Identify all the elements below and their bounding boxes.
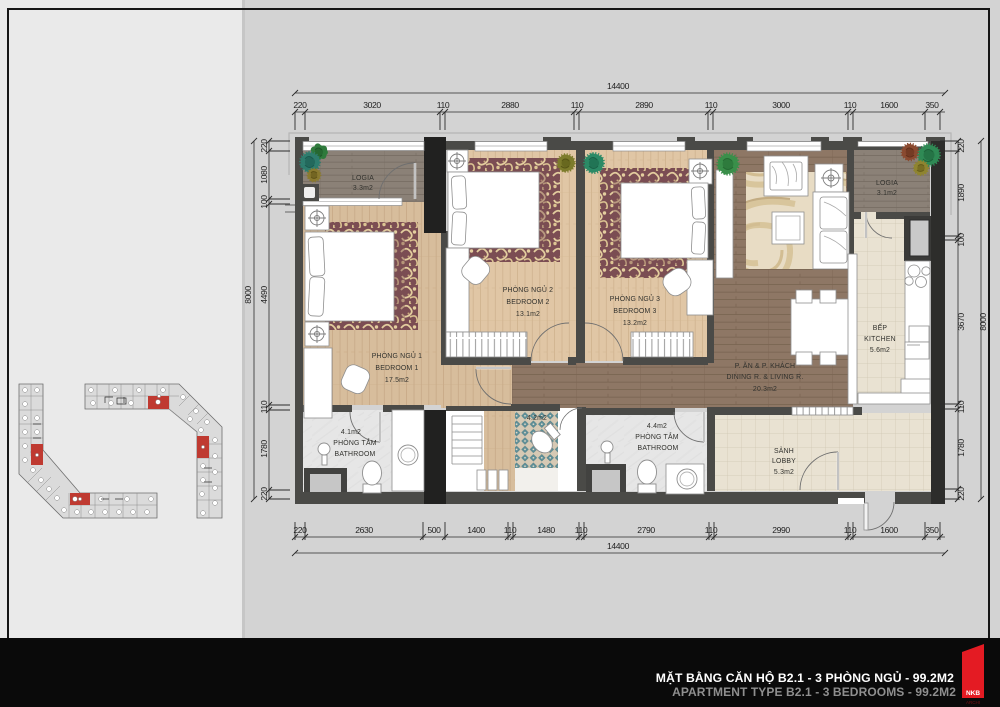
svg-text:20.3m2: 20.3m2 — [753, 386, 777, 393]
svg-text:110: 110 — [705, 525, 718, 535]
svg-text:110: 110 — [705, 100, 718, 110]
svg-text:220: 220 — [956, 139, 966, 153]
svg-text:3020: 3020 — [363, 100, 381, 110]
svg-text:KITCHEN: KITCHEN — [864, 336, 896, 343]
svg-text:350: 350 — [925, 100, 939, 110]
svg-text:P. ĂN & P. KHÁCH: P. ĂN & P. KHÁCH — [735, 361, 795, 370]
svg-text:3.1m2: 3.1m2 — [877, 190, 897, 197]
svg-text:PHÒNG NGỦ 2: PHÒNG NGỦ 2 — [503, 285, 553, 294]
svg-text:5.6m2: 5.6m2 — [870, 347, 890, 354]
svg-text:110: 110 — [844, 525, 857, 535]
svg-text:13.2m2: 13.2m2 — [623, 320, 647, 327]
svg-text:BATHROOM: BATHROOM — [335, 451, 376, 458]
svg-text:110: 110 — [437, 100, 450, 110]
svg-text:PHÒNG TẮM: PHÒNG TẮM — [333, 438, 376, 447]
svg-text:110: 110 — [259, 400, 269, 413]
svg-text:NKB: NKB — [966, 690, 980, 697]
svg-text:110: 110 — [575, 525, 588, 535]
svg-text:8000: 8000 — [243, 286, 253, 304]
svg-text:220: 220 — [259, 487, 269, 501]
svg-text:14400: 14400 — [607, 81, 630, 91]
svg-text:13.1m2: 13.1m2 — [516, 311, 540, 318]
svg-text:4.1m2: 4.1m2 — [341, 429, 361, 436]
svg-text:LOGIA: LOGIA — [352, 175, 374, 182]
svg-text:4.4m2: 4.4m2 — [647, 423, 667, 430]
svg-text:1080: 1080 — [259, 166, 269, 184]
svg-text:LOBBY: LOBBY — [772, 458, 796, 465]
svg-text:BEDROOM 2: BEDROOM 2 — [506, 299, 549, 306]
svg-text:14400: 14400 — [607, 541, 630, 551]
svg-text:LOGIA: LOGIA — [876, 180, 898, 187]
svg-text:110: 110 — [844, 100, 857, 110]
svg-text:MẶT BẰNG CĂN HỘ B2.1 - 3 PHÒNG: MẶT BẰNG CĂN HỘ B2.1 - 3 PHÒNG NGỦ - 99.… — [656, 670, 954, 685]
svg-text:4.2m2: 4.2m2 — [527, 415, 547, 422]
svg-text:2880: 2880 — [501, 100, 519, 110]
svg-text:220: 220 — [293, 525, 307, 535]
svg-text:1780: 1780 — [956, 439, 966, 457]
svg-text:220: 220 — [293, 100, 307, 110]
svg-text:17.5m2: 17.5m2 — [385, 377, 409, 384]
svg-text:2890: 2890 — [635, 100, 653, 110]
svg-text:1600: 1600 — [880, 525, 898, 535]
svg-text:DINING R. & LIVING R.: DINING R. & LIVING R. — [727, 374, 804, 381]
svg-text:1600: 1600 — [880, 100, 898, 110]
svg-text:5.3m2: 5.3m2 — [774, 469, 794, 476]
svg-text:4490: 4490 — [259, 286, 269, 304]
svg-text:APARTMENT TYPE B2.1 - 3 BEDROO: APARTMENT TYPE B2.1 - 3 BEDROOMS - 99.2M… — [672, 685, 956, 699]
svg-text:110: 110 — [571, 100, 584, 110]
svg-text:BEDROOM 3: BEDROOM 3 — [613, 308, 656, 315]
svg-text:220: 220 — [259, 139, 269, 153]
svg-text:2790: 2790 — [637, 525, 655, 535]
svg-text:110: 110 — [956, 400, 966, 413]
svg-text:3.3m2: 3.3m2 — [353, 185, 373, 192]
svg-text:100: 100 — [259, 195, 269, 209]
svg-text:2990: 2990 — [772, 525, 790, 535]
svg-text:350: 350 — [925, 525, 939, 535]
svg-text:1480: 1480 — [537, 525, 555, 535]
svg-text:BEDROOM 1: BEDROOM 1 — [375, 365, 418, 372]
svg-text:110: 110 — [504, 525, 517, 535]
svg-text:1780: 1780 — [259, 440, 269, 458]
svg-text:220: 220 — [956, 487, 966, 501]
svg-text:PHÒNG TẮM: PHÒNG TẮM — [635, 432, 678, 441]
svg-text:SẢNH: SẢNH — [774, 446, 794, 455]
svg-text:3000: 3000 — [772, 100, 790, 110]
svg-text:8000: 8000 — [978, 313, 988, 331]
svg-text:1890: 1890 — [956, 184, 966, 202]
svg-text:1400: 1400 — [467, 525, 485, 535]
svg-text:BATHROOM: BATHROOM — [638, 445, 679, 452]
svg-text:3670: 3670 — [956, 313, 966, 331]
svg-text:500: 500 — [427, 525, 441, 535]
svg-text:ARCHI: ARCHI — [966, 700, 980, 705]
svg-text:PHÒNG NGỦ 3: PHÒNG NGỦ 3 — [610, 294, 660, 303]
svg-text:2630: 2630 — [355, 525, 373, 535]
svg-text:100: 100 — [956, 233, 966, 247]
svg-text:PHÒNG NGỦ 1: PHÒNG NGỦ 1 — [372, 351, 422, 360]
